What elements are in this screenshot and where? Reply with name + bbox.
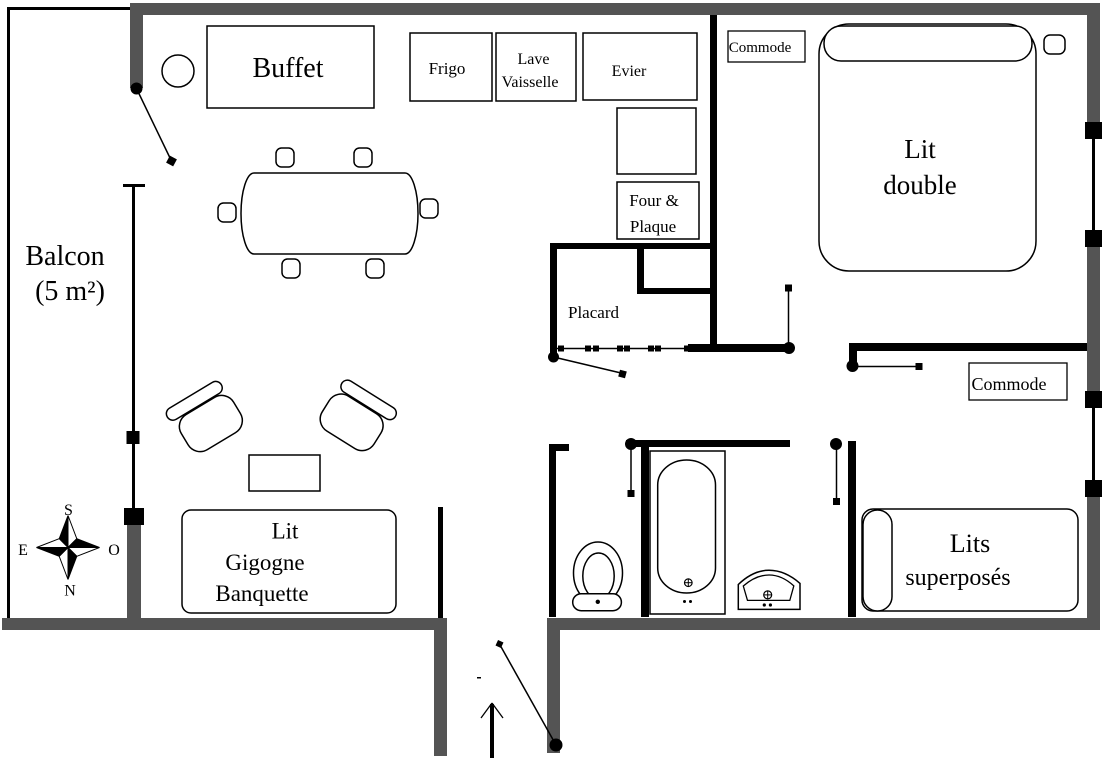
svg-text:Gigogne: Gigogne — [225, 550, 304, 575]
svg-text:Balcon: Balcon — [25, 241, 104, 272]
svg-text:Lave: Lave — [518, 51, 550, 68]
svg-text:N: N — [64, 583, 76, 600]
svg-text:Placard: Placard — [568, 303, 619, 322]
svg-text:Lit: Lit — [904, 134, 936, 164]
svg-text:E: E — [18, 542, 28, 559]
svg-text:Plaque: Plaque — [630, 217, 676, 236]
svg-text:Four &: Four & — [629, 191, 679, 210]
svg-text:Commode: Commode — [972, 374, 1047, 394]
svg-text:(5 m²): (5 m²) — [35, 276, 105, 307]
svg-text:Lits: Lits — [950, 529, 990, 558]
svg-text:O: O — [108, 542, 120, 559]
svg-text:Buffet: Buffet — [252, 53, 323, 84]
svg-text:Vaisselle: Vaisselle — [502, 74, 559, 91]
svg-text:Evier: Evier — [612, 63, 647, 80]
svg-text:Frigo: Frigo — [429, 59, 466, 78]
svg-text:Commode: Commode — [729, 40, 792, 56]
svg-text:superposés: superposés — [905, 565, 1010, 591]
svg-text:Banquette: Banquette — [215, 581, 308, 606]
svg-text:Lit: Lit — [272, 519, 299, 544]
svg-text:S: S — [64, 502, 73, 519]
svg-text:double: double — [883, 170, 957, 200]
